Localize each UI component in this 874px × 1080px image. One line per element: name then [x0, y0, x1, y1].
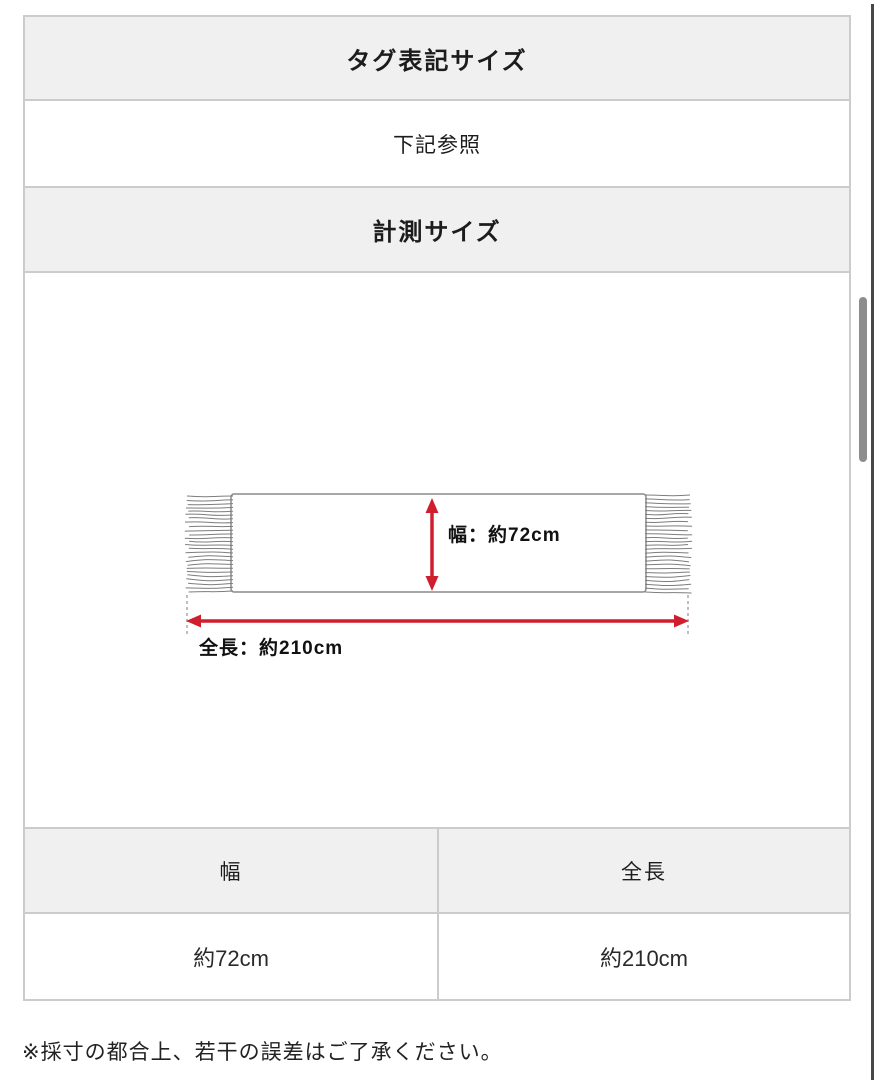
table-value-length: 約210cm — [437, 914, 849, 999]
measurement-table-header-row: 幅 全長 — [25, 827, 849, 912]
table-header-width: 幅 — [25, 829, 437, 912]
scarf-dimension-diagram: 幅：約72cm 全長：約210cm — [25, 271, 849, 827]
table-value-width: 約72cm — [25, 914, 437, 999]
vertical-scrollbar-thumb[interactable] — [859, 297, 867, 462]
scarf-body — [231, 494, 646, 592]
tag-size-header-label: タグ表記サイズ — [346, 41, 527, 76]
measured-size-header-row: 計測サイズ — [25, 186, 849, 271]
tag-size-value-label: 下記参照 — [393, 129, 481, 159]
size-chart-table: タグ表記サイズ 下記参照 計測サイズ — [23, 15, 851, 1001]
table-header-length: 全長 — [437, 829, 849, 912]
tag-size-value-row: 下記参照 — [25, 99, 849, 186]
measurement-table-value-row: 約72cm 約210cm — [25, 912, 849, 999]
scarf-right-fringe — [645, 495, 692, 593]
length-arrow — [186, 615, 689, 628]
tag-size-header-row: タグ表記サイズ — [25, 17, 849, 99]
measurement-disclaimer-note: ※採寸の都合上、若干の誤差はご了承ください。 — [22, 1036, 503, 1066]
measured-size-header-label: 計測サイズ — [372, 212, 501, 247]
length-dimension-label: 全長：約210cm — [198, 636, 343, 659]
scarf-diagram-svg: 幅：約72cm 全長：約210cm — [25, 273, 849, 829]
scarf-left-fringe — [185, 496, 233, 592]
width-dimension-label: 幅：約72cm — [448, 523, 561, 546]
